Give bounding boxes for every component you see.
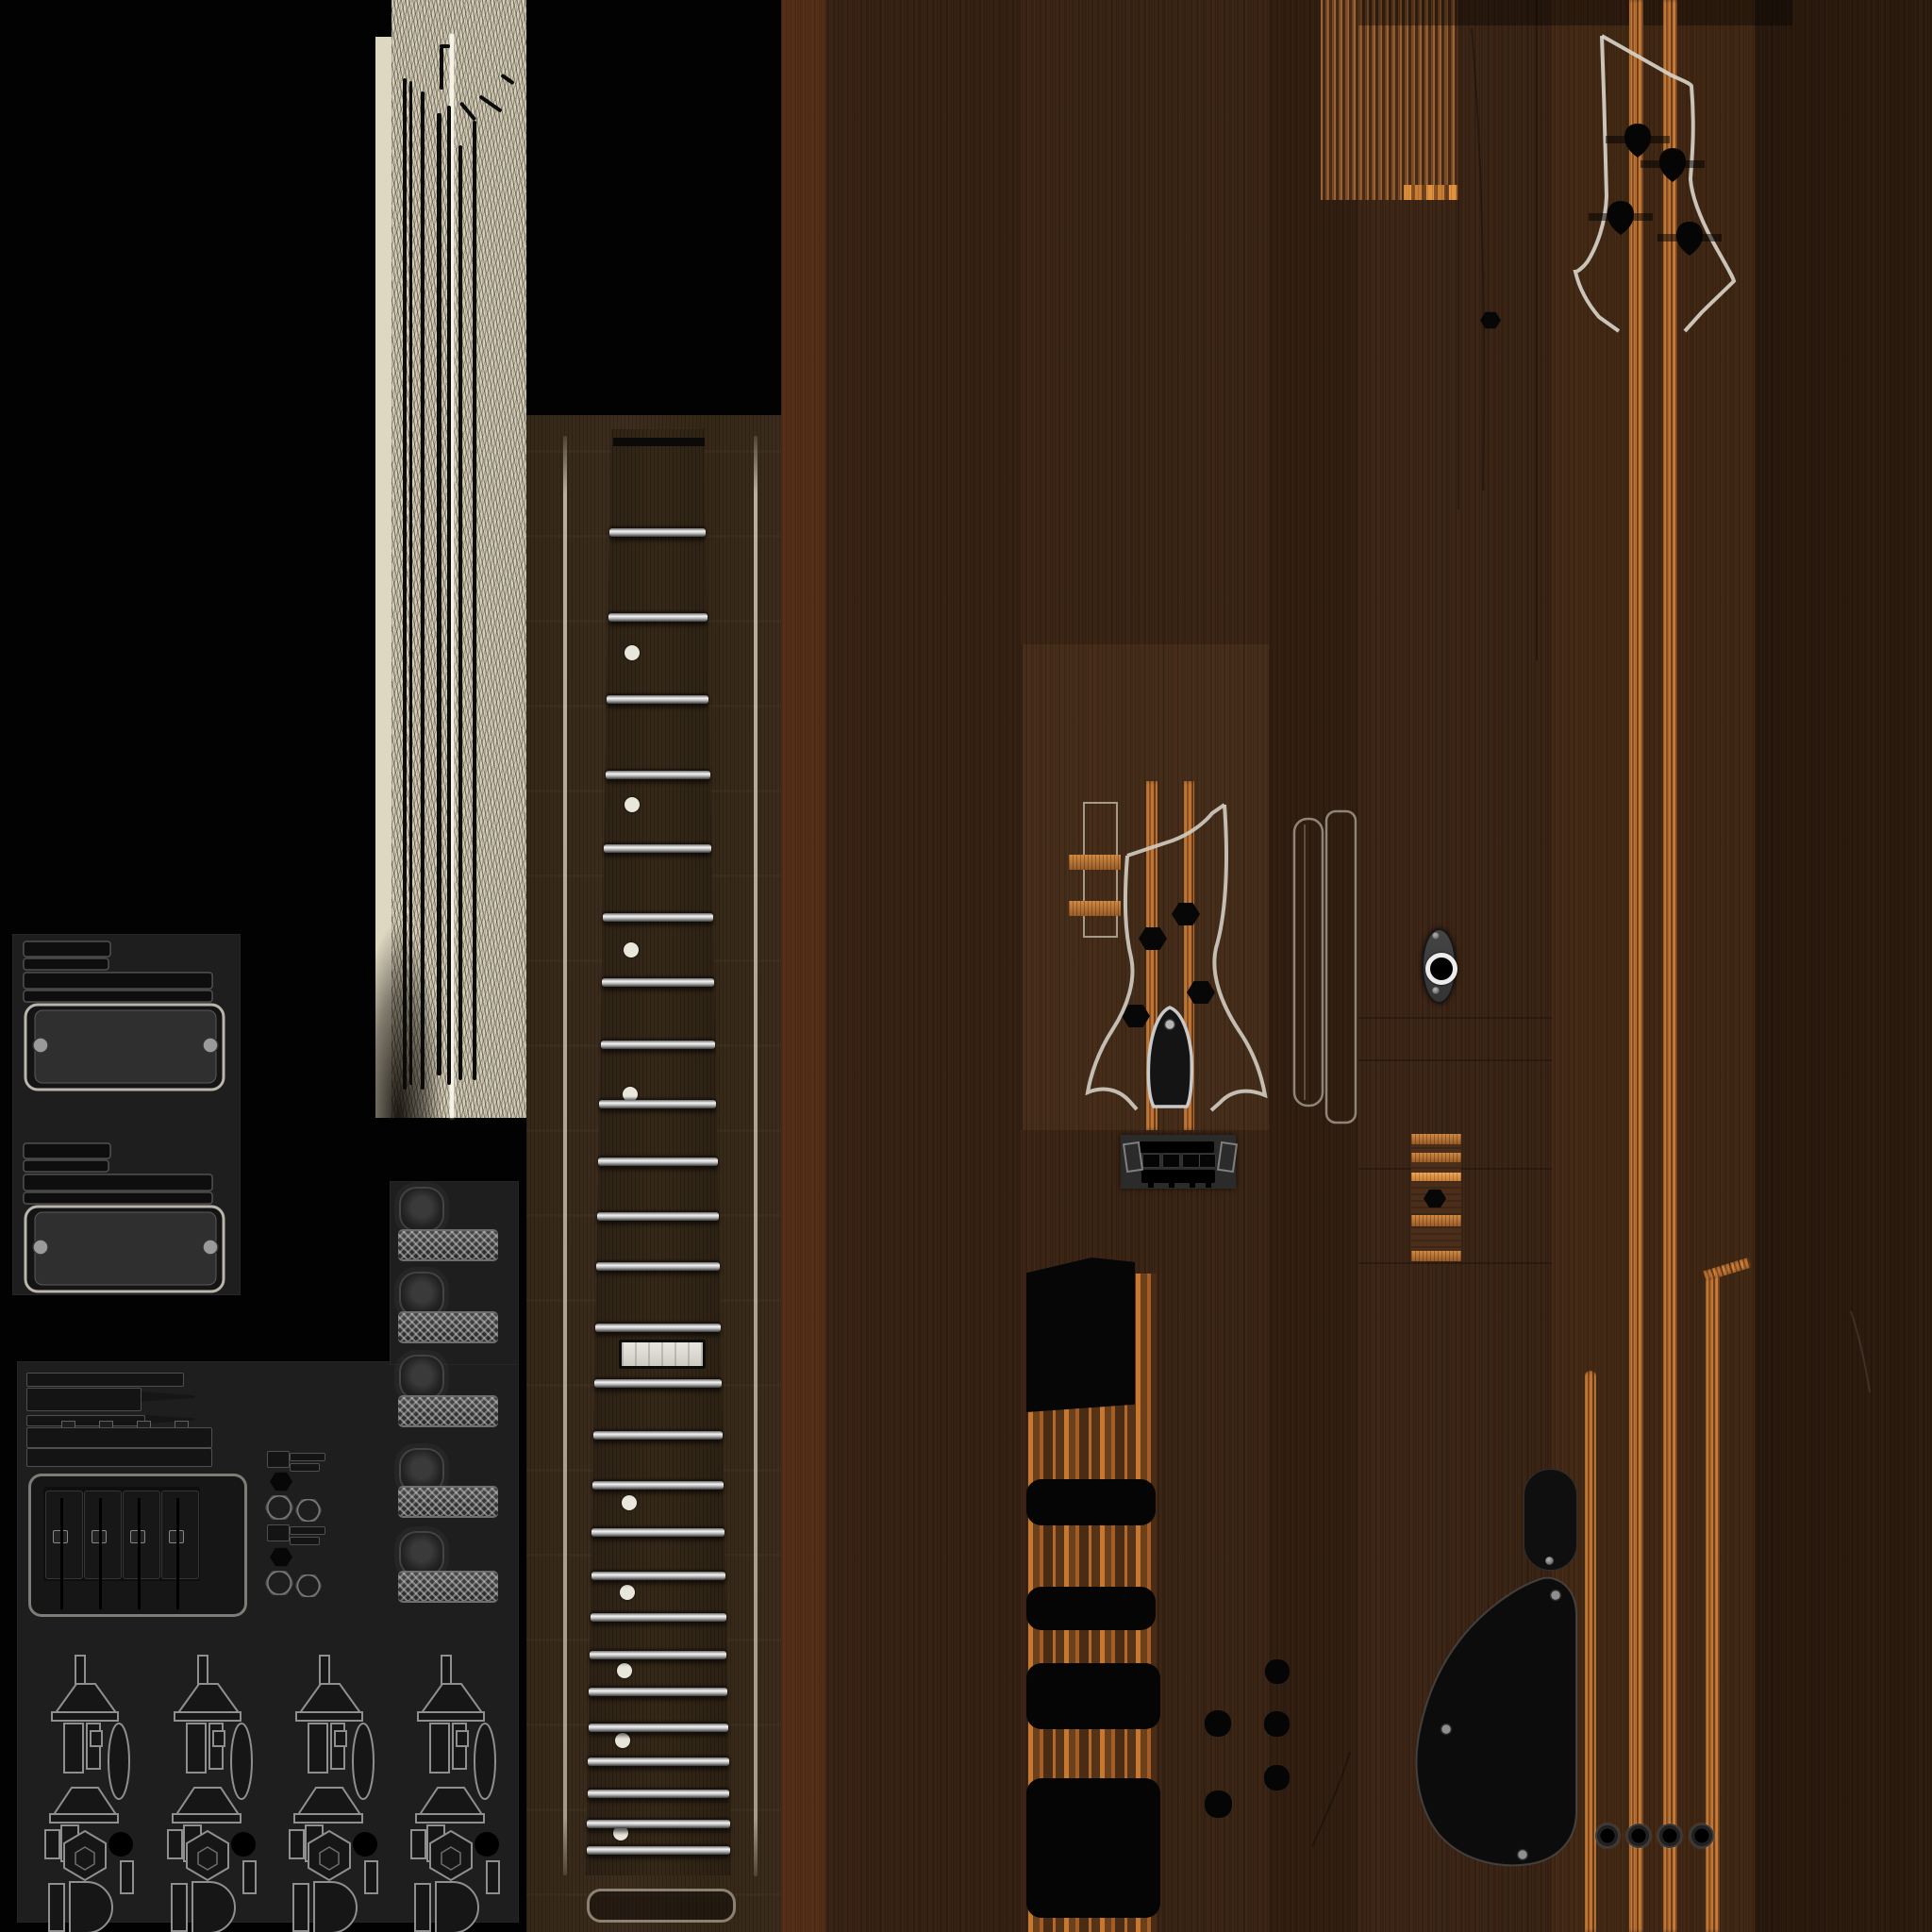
headstock-back-outline — [1575, 36, 1734, 331]
pickup-diagram — [24, 941, 224, 1291]
control-cavity-cover — [1417, 1578, 1576, 1866]
tuner-diagrams — [45, 1656, 499, 1932]
truss-rod-cover — [1148, 1008, 1191, 1107]
tuner-posts — [1589, 124, 1722, 256]
faint-body-lines — [1312, 28, 1870, 1847]
atlas-svg-layer — [0, 0, 1932, 1932]
guitar-texture-atlas — [0, 0, 1932, 1932]
side-strip-outlines — [1294, 811, 1356, 1123]
